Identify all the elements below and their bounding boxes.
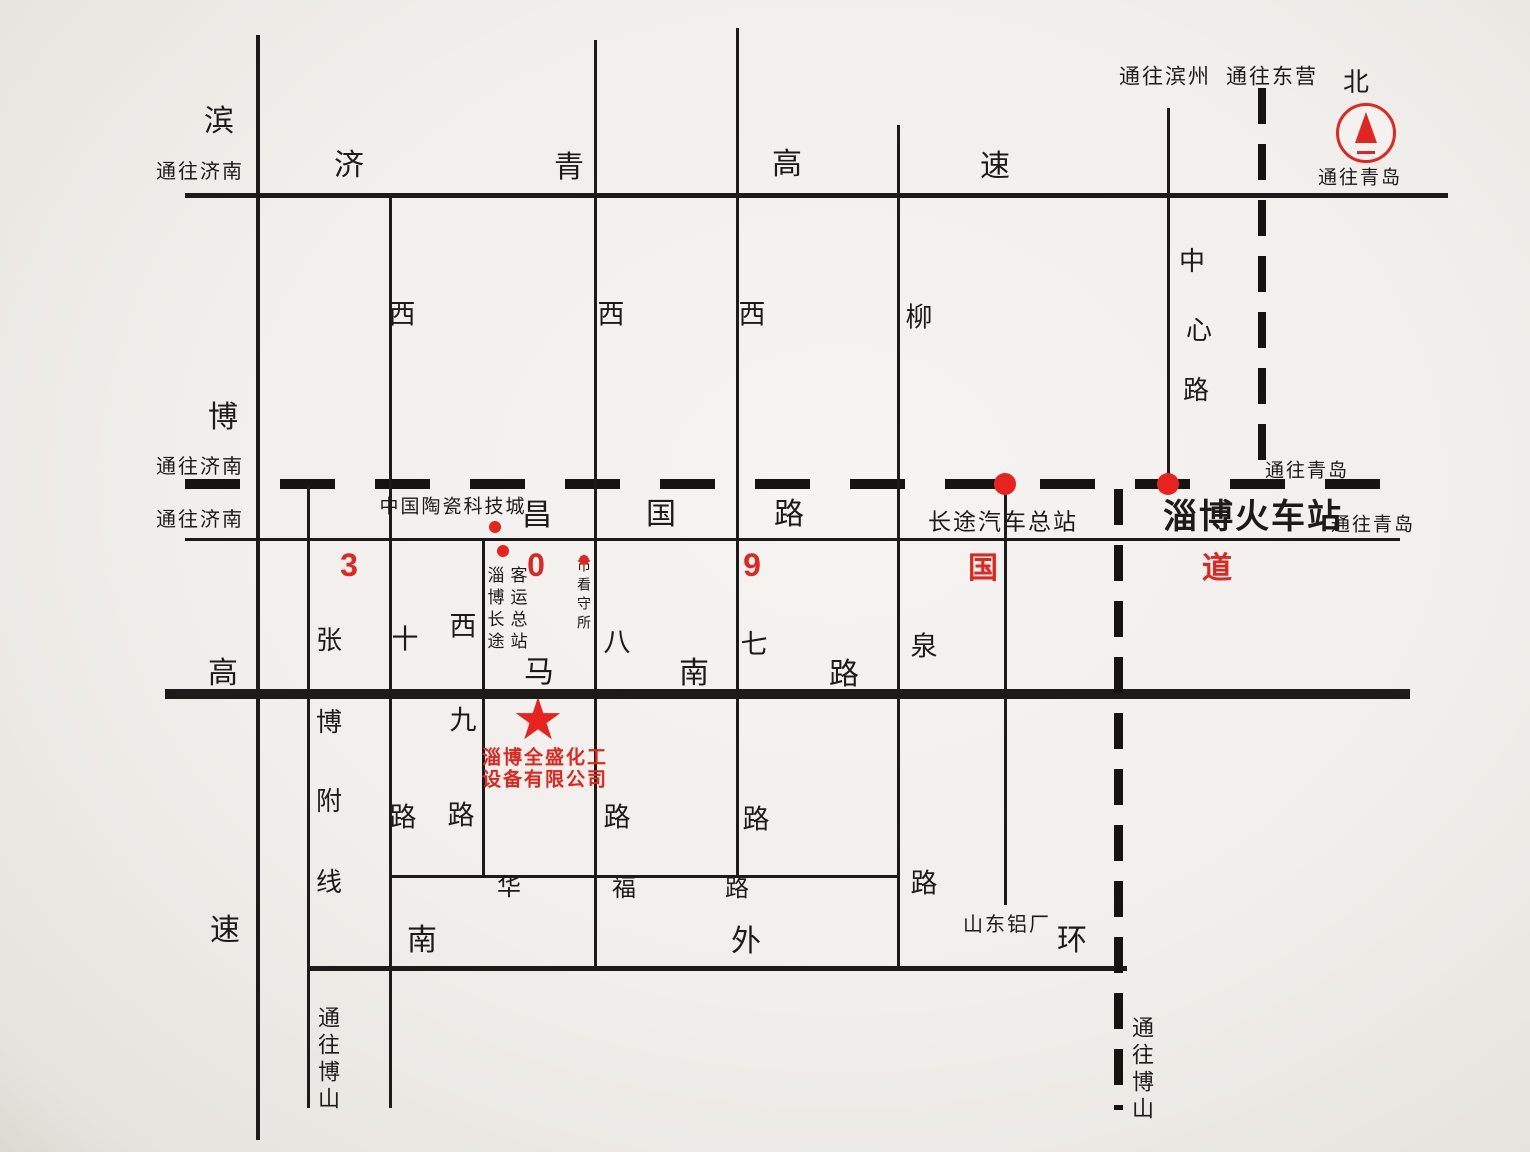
to-jinan-changguo: 通往济南 (156, 510, 244, 530)
west8-char-ba: 八 (604, 630, 633, 657)
to-jinan-top: 通往济南 (156, 162, 244, 182)
road-bus-terminal-road (1004, 486, 1007, 905)
road-west-8th-road (594, 40, 597, 969)
road-zhangbo-branch-line (307, 486, 310, 1108)
to-qingdao-309: 通往青岛 (1265, 462, 1349, 481)
g309-char-dao: 道 (1202, 554, 1234, 584)
changguo-char-chang: 昌 (522, 501, 554, 531)
north-label: 北 (1343, 69, 1371, 95)
road-g309-national-road (185, 479, 1415, 489)
zhangbo-char-xian: 线 (316, 869, 344, 895)
to-qingdao-changguo: 通往青岛 (1331, 516, 1415, 535)
west8-char-xi: 西 (598, 302, 627, 329)
compass-arrow-base (1357, 151, 1375, 154)
binbo-expwy-char-gao: 高 (208, 659, 240, 689)
g309-char-guo: 国 (968, 554, 1000, 584)
dot-ceramic-city (489, 521, 501, 533)
liuquan-char-liu: 柳 (906, 305, 935, 332)
center-road-char-lu: 路 (1183, 377, 1211, 403)
west10-char-xi: 西 (389, 302, 418, 329)
map-canvas: ★ 滨博高速济青高速通往济南通往济南通往济南通往滨州通往东营北通往青岛通往青岛通… (0, 0, 1530, 1152)
road-to-dongying-road (1258, 88, 1266, 486)
west9-char-lu: 路 (448, 803, 477, 830)
changguo-char-guo: 国 (646, 500, 678, 530)
center-road-char-xin: 心 (1186, 317, 1214, 343)
zhangbo-char-zhang: 张 (316, 627, 344, 653)
g309-char-3: 3 (340, 549, 360, 581)
road-center-road (1167, 108, 1170, 489)
company-name-line2: 设备有限公司 (482, 771, 608, 790)
to-qingdao-top: 通往青岛 (1318, 169, 1402, 188)
west9-char-xi: 西 (450, 614, 479, 641)
jiqing-expwy-char-su: 速 (980, 152, 1012, 182)
bus-terminal: 长途汽车总站 (928, 511, 1078, 534)
company-location-star-icon: ★ (512, 691, 564, 749)
compass-icon (1336, 103, 1396, 163)
dot-railway-station-309 (1157, 473, 1179, 495)
west9-char-jiu: 九 (450, 708, 479, 735)
liuquan-char-lu: 路 (911, 871, 940, 898)
road-west-7th-road (736, 28, 739, 877)
changguo-char-lu: 路 (774, 500, 806, 530)
west10-char-lu: 路 (390, 805, 419, 832)
railway-station: 淄博火车站 (1163, 500, 1343, 534)
ring-char-huan: 环 (1057, 926, 1089, 956)
west7-char-lu: 路 (743, 807, 772, 834)
ceramic-city: 中国陶瓷科技城 (379, 498, 526, 517)
ring-char-wai: 外 (731, 927, 763, 957)
road-changguo-road (185, 538, 1400, 541)
binbo-expwy-char-bin: 滨 (204, 107, 236, 137)
dot-bus-terminal-309 (994, 473, 1016, 495)
to-binzhou: 通往滨州 (1119, 67, 1211, 88)
shandong-aluminum: 山东铝厂 (963, 915, 1051, 935)
binbo-expwy-char-su: 速 (210, 916, 242, 946)
jiqing-expwy-char-qing: 青 (554, 153, 586, 183)
detention-house: 市看守所 (577, 558, 591, 634)
zhangbo-char-fu: 附 (316, 788, 344, 814)
road-liuquan-road (897, 125, 900, 969)
zhangbo-char-bo: 博 (316, 709, 344, 735)
dot-longdistance-bus (497, 545, 509, 557)
road-south-outer-ring-road (308, 966, 1127, 971)
road-ring-road-south-extension (1114, 489, 1123, 1110)
g309-char-0: 0 (527, 549, 547, 581)
manan-char-ma: 马 (524, 658, 556, 688)
west8-char-lu: 路 (604, 805, 633, 832)
manan-char-lu: 路 (829, 660, 861, 690)
longdistance-bus-col-1: 淄博长途 (486, 566, 503, 654)
compass-north-arrow-icon (1355, 112, 1377, 143)
west7-char-qi: 七 (741, 632, 770, 659)
to-jinan-middle: 通往济南 (156, 457, 244, 477)
to-boshan-right: 通往博山 (1130, 1016, 1152, 1124)
jiqing-expwy-char-gao: 高 (772, 150, 804, 180)
ring-char-nan: 南 (407, 926, 439, 956)
center-road-char-zhong: 中 (1179, 248, 1207, 274)
road-manan-road (165, 689, 1410, 699)
road-huafu-road (390, 875, 898, 878)
west10-char-shi: 十 (392, 627, 421, 654)
west7-char-xi: 西 (739, 302, 768, 329)
huafu-char-fu: 福 (612, 877, 638, 901)
huafu-char-hua: 华 (497, 876, 523, 900)
road-binbo-expressway (256, 35, 260, 1140)
to-dongying: 通往东营 (1226, 67, 1318, 88)
company-name-line1: 淄博全盛化工 (482, 749, 608, 768)
huafu-char-lu: 路 (725, 877, 751, 901)
jiqing-expwy-char-ji: 济 (334, 151, 366, 181)
binbo-expwy-char-bo: 博 (208, 403, 240, 433)
longdistance-bus-col-2: 客运总站 (509, 566, 526, 654)
liuquan-char-quan: 泉 (911, 634, 940, 661)
g309-char-9: 9 (743, 549, 763, 581)
dot-detention-house (579, 555, 589, 565)
to-boshan-left: 通往博山 (316, 1006, 338, 1114)
manan-char-nan: 南 (679, 659, 711, 689)
